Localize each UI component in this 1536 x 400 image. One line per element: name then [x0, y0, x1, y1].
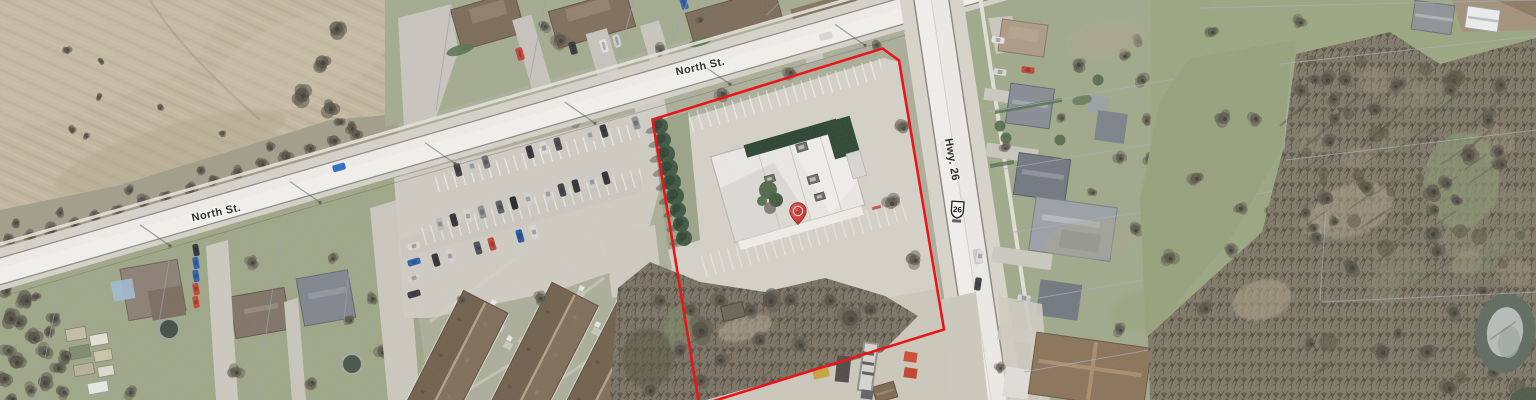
- svg-text:26: 26: [953, 205, 963, 215]
